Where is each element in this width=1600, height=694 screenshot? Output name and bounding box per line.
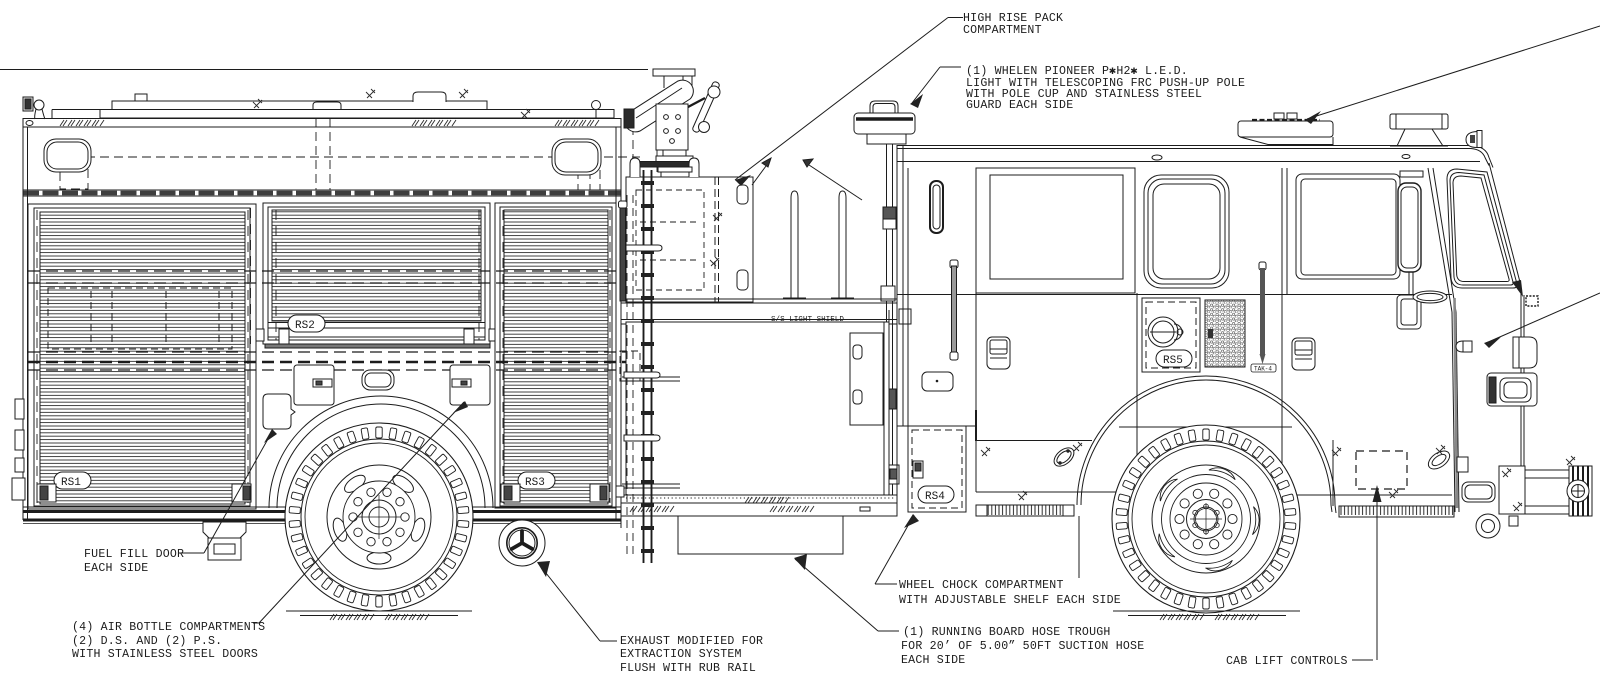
svg-text:RS1: RS1 xyxy=(61,477,81,489)
svg-text:FUEL FILL DOOR: FUEL FILL DOOR xyxy=(84,548,184,561)
svg-text:GUARD EACH SIDE: GUARD EACH SIDE xyxy=(966,99,1073,112)
svg-text:EACH SIDE: EACH SIDE xyxy=(901,654,965,667)
svg-text:RS2: RS2 xyxy=(295,320,315,332)
svg-text:(4) AIR BOTTLE COMPARTMENTS: (4) AIR BOTTLE COMPARTMENTS xyxy=(72,621,265,634)
svg-text:RS4: RS4 xyxy=(925,491,945,503)
svg-text:WITH ADJUSTABLE SHELF EACH SID: WITH ADJUSTABLE SHELF EACH SIDE xyxy=(899,594,1121,607)
svg-text:RS3: RS3 xyxy=(525,477,545,489)
svg-text:RS5: RS5 xyxy=(1163,355,1183,367)
svg-text:CAB LIFT CONTROLS: CAB LIFT CONTROLS xyxy=(1226,655,1348,668)
svg-text:WITH STAINLESS STEEL DOORS: WITH STAINLESS STEEL DOORS xyxy=(72,648,258,661)
svg-text:COMPARTMENT: COMPARTMENT xyxy=(963,24,1042,37)
svg-text:(2) D.S. AND (2) P.S.: (2) D.S. AND (2) P.S. xyxy=(72,635,222,648)
svg-text:WHEEL CHOCK COMPARTMENT: WHEEL CHOCK COMPARTMENT xyxy=(899,579,1064,592)
svg-text:TAK-4: TAK-4 xyxy=(1254,366,1272,373)
svg-text:FOR 20’ OF 5.00” 50FT SUCTION: FOR 20’ OF 5.00” 50FT SUCTION HOSE xyxy=(901,640,1144,653)
svg-text:EXHAUST MODIFIED FOR: EXHAUST MODIFIED FOR xyxy=(620,635,763,648)
svg-text:(1) RUNNING BOARD HOSE TROUGH: (1) RUNNING BOARD HOSE TROUGH xyxy=(903,626,1111,639)
svg-text:EXTRACTION SYSTEM: EXTRACTION SYSTEM xyxy=(620,648,742,661)
svg-text:EACH SIDE: EACH SIDE xyxy=(84,562,148,575)
svg-text:FLUSH WITH RUB RAIL: FLUSH WITH RUB RAIL xyxy=(620,662,756,675)
